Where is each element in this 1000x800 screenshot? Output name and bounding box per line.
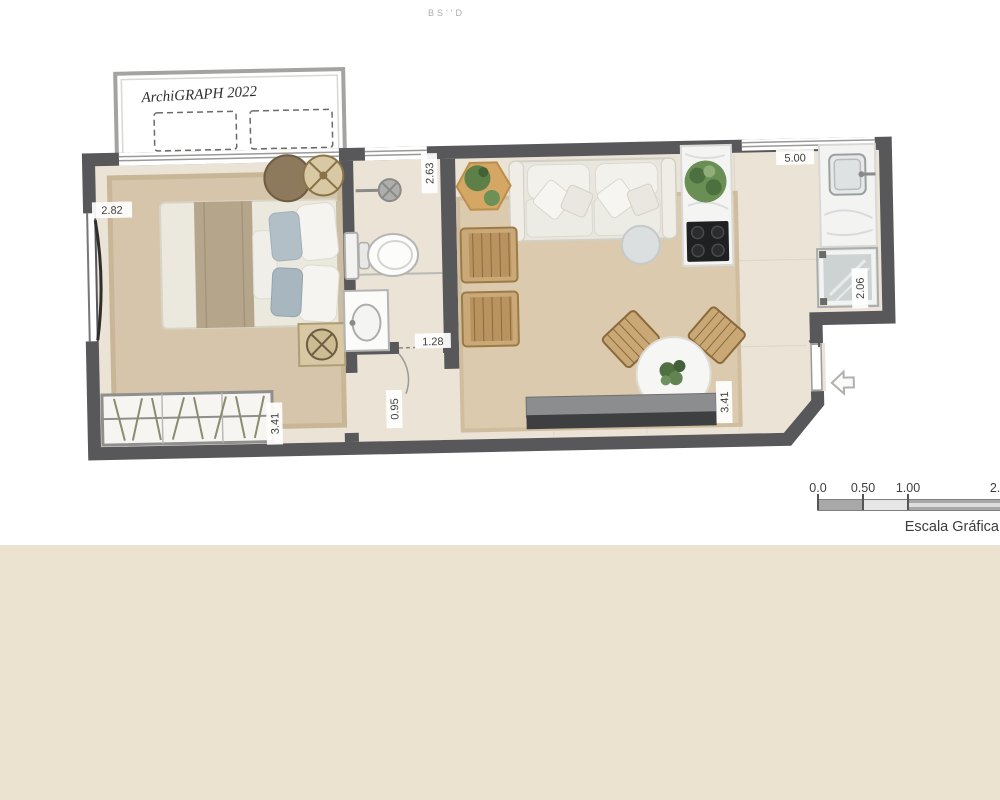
- floor-plan-drawing: ArchiGRAPH 2022: [78, 58, 898, 461]
- kitchen-island: [681, 145, 734, 266]
- armchair: [460, 227, 517, 282]
- dim-bathroom: 2.63: [424, 162, 436, 184]
- service-box: [817, 248, 878, 307]
- balcony: ArchiGRAPH 2022: [115, 69, 345, 160]
- dim-kitchen: 5.00: [784, 152, 806, 164]
- scale-label-0: 0.0: [809, 481, 826, 495]
- bed: [160, 199, 345, 329]
- toilet: [345, 232, 419, 280]
- floor-plan: ArchiGRAPH 2022: [0, 0, 1000, 545]
- graphic-scale: 0.0 0.50 1.00 2.00 Escala Gráfica: [809, 481, 1000, 535]
- scale-label-3: 2.00: [990, 481, 1000, 495]
- scale-label-2: 1.00: [896, 481, 920, 495]
- dim-bedroom-depth: 3.41: [269, 413, 281, 435]
- info-panel: TIPO apartamentos 204 / 304 área privati…: [0, 545, 1000, 800]
- dim-bedroom-window: 2.82: [101, 205, 123, 217]
- entry-door: [808, 341, 826, 391]
- brochure-page: BS''D ArchiGRAPH 2022: [0, 0, 1000, 800]
- dim-service: 2.06: [855, 277, 867, 299]
- dim-hall-door: 1.28: [422, 336, 444, 348]
- side-table: [621, 225, 660, 264]
- dim-living-depth: 3.41: [719, 391, 731, 413]
- scale-caption: Escala Gráfica: [905, 519, 1000, 535]
- bedroom: [97, 154, 349, 445]
- entry-arrow-icon: [832, 371, 854, 393]
- cooktop: [686, 221, 729, 262]
- kitchen-sink-counter: [819, 144, 877, 247]
- armchair: [462, 291, 519, 346]
- dim-hall: 0.95: [389, 398, 401, 420]
- vanity-sink: [344, 290, 389, 351]
- scale-label-1: 0.50: [851, 481, 875, 495]
- sideboard: [526, 393, 717, 429]
- wardrobe: [102, 392, 273, 446]
- bedside-bench: [298, 323, 345, 366]
- rattan-fan-icon: [303, 155, 344, 196]
